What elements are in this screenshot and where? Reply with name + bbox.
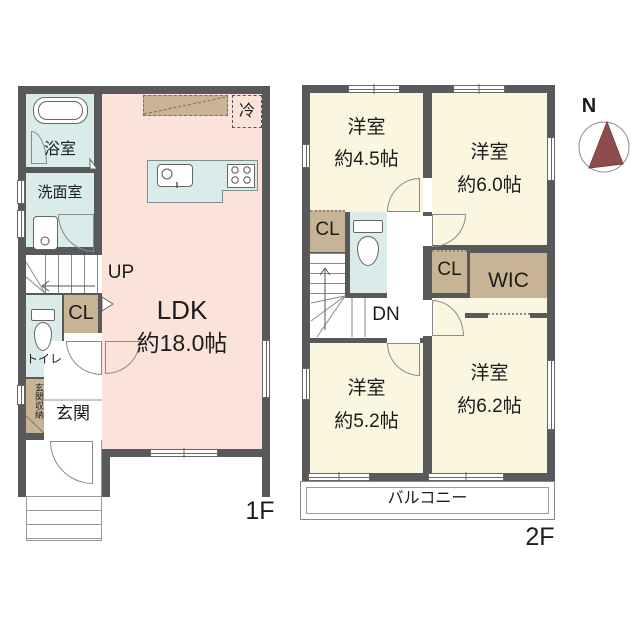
doorway-2f-62 — [423, 300, 432, 336]
label-balcony: バルコニー — [300, 490, 555, 508]
label-ldk-size: 約18.0帖 — [102, 330, 262, 356]
window-2f-west-b — [302, 368, 310, 400]
label-closet-1f: CL — [64, 302, 98, 325]
washbasin — [33, 216, 58, 250]
label-room52-name: 洋室 — [310, 378, 423, 400]
window-1f-wash-a — [17, 180, 25, 204]
kitchen-sink — [157, 164, 193, 187]
label-ldk-name: LDK — [102, 296, 262, 326]
label-bath: 浴室 — [26, 141, 94, 159]
label-compass-north: N — [574, 95, 604, 118]
toilet-tank-2f — [353, 220, 383, 233]
label-stairs-dn: DN — [358, 304, 414, 326]
window-1f-wash-b — [17, 210, 25, 238]
window-1f-storage — [17, 385, 25, 405]
label-room45-name: 洋室 — [310, 117, 423, 139]
entry-steps — [26, 497, 102, 541]
window-2f-south-b — [428, 473, 504, 481]
label-closet-2f-mid: CL — [432, 259, 467, 281]
terrace-wall-left — [102, 457, 110, 497]
window-2f-east-a — [547, 137, 555, 181]
label-entrance-storage: 玄関収納 — [26, 383, 44, 431]
label-toilet-1f: トイレ — [25, 353, 63, 367]
kitchen-counter-ext — [147, 190, 223, 203]
label-wic: WIC — [470, 269, 547, 293]
label-washroom: 洗面室 — [26, 184, 94, 201]
label-closet-2f-left: CL — [310, 219, 345, 241]
label-room60-name: 洋室 — [432, 142, 547, 164]
porch-wall — [18, 440, 26, 497]
stairs-2f-treads — [310, 253, 345, 297]
window-1f-ldk-south — [150, 449, 218, 457]
label-room52-size: 約5.2帖 — [310, 411, 423, 433]
label-fridge: 冷 — [232, 103, 262, 121]
label-entrance: 玄関 — [44, 404, 102, 424]
label-stairs-up: UP — [101, 262, 141, 284]
label-room60-size: 約6.0帖 — [432, 175, 547, 197]
window-2f-north-b — [453, 85, 505, 93]
label-room62-size: 約6.2帖 — [432, 396, 547, 418]
compass-icon — [579, 122, 629, 172]
doorway-2f-60 — [423, 216, 432, 246]
doorway-hall — [64, 333, 102, 341]
label-room45-size: 約4.5帖 — [310, 149, 423, 171]
window-2f-west-a — [302, 144, 310, 168]
toilet-tank-1f — [31, 309, 55, 321]
wic-opening — [488, 313, 530, 318]
window-2f-north-a — [348, 85, 400, 93]
counter-hatch — [143, 95, 228, 116]
label-floor-1f: 1F — [236, 497, 284, 526]
floorplan-canvas: 浴室 洗面室 トイレ 玄関 玄関収納 CL UP 冷 LDK 約18.0帖 1F… — [0, 0, 640, 640]
window-2f-east-b — [547, 360, 555, 430]
terrace-wall-right — [262, 457, 270, 497]
stairs-1f-treads — [45, 255, 102, 293]
window-1f-ldk-east — [262, 340, 270, 398]
bathtub-inner — [38, 101, 83, 120]
window-2f-south-a — [308, 473, 370, 481]
stove — [227, 164, 255, 188]
doorway-2f-45 — [423, 178, 432, 212]
label-room62-name: 洋室 — [432, 363, 547, 385]
label-floor-2f: 2F — [516, 523, 564, 552]
